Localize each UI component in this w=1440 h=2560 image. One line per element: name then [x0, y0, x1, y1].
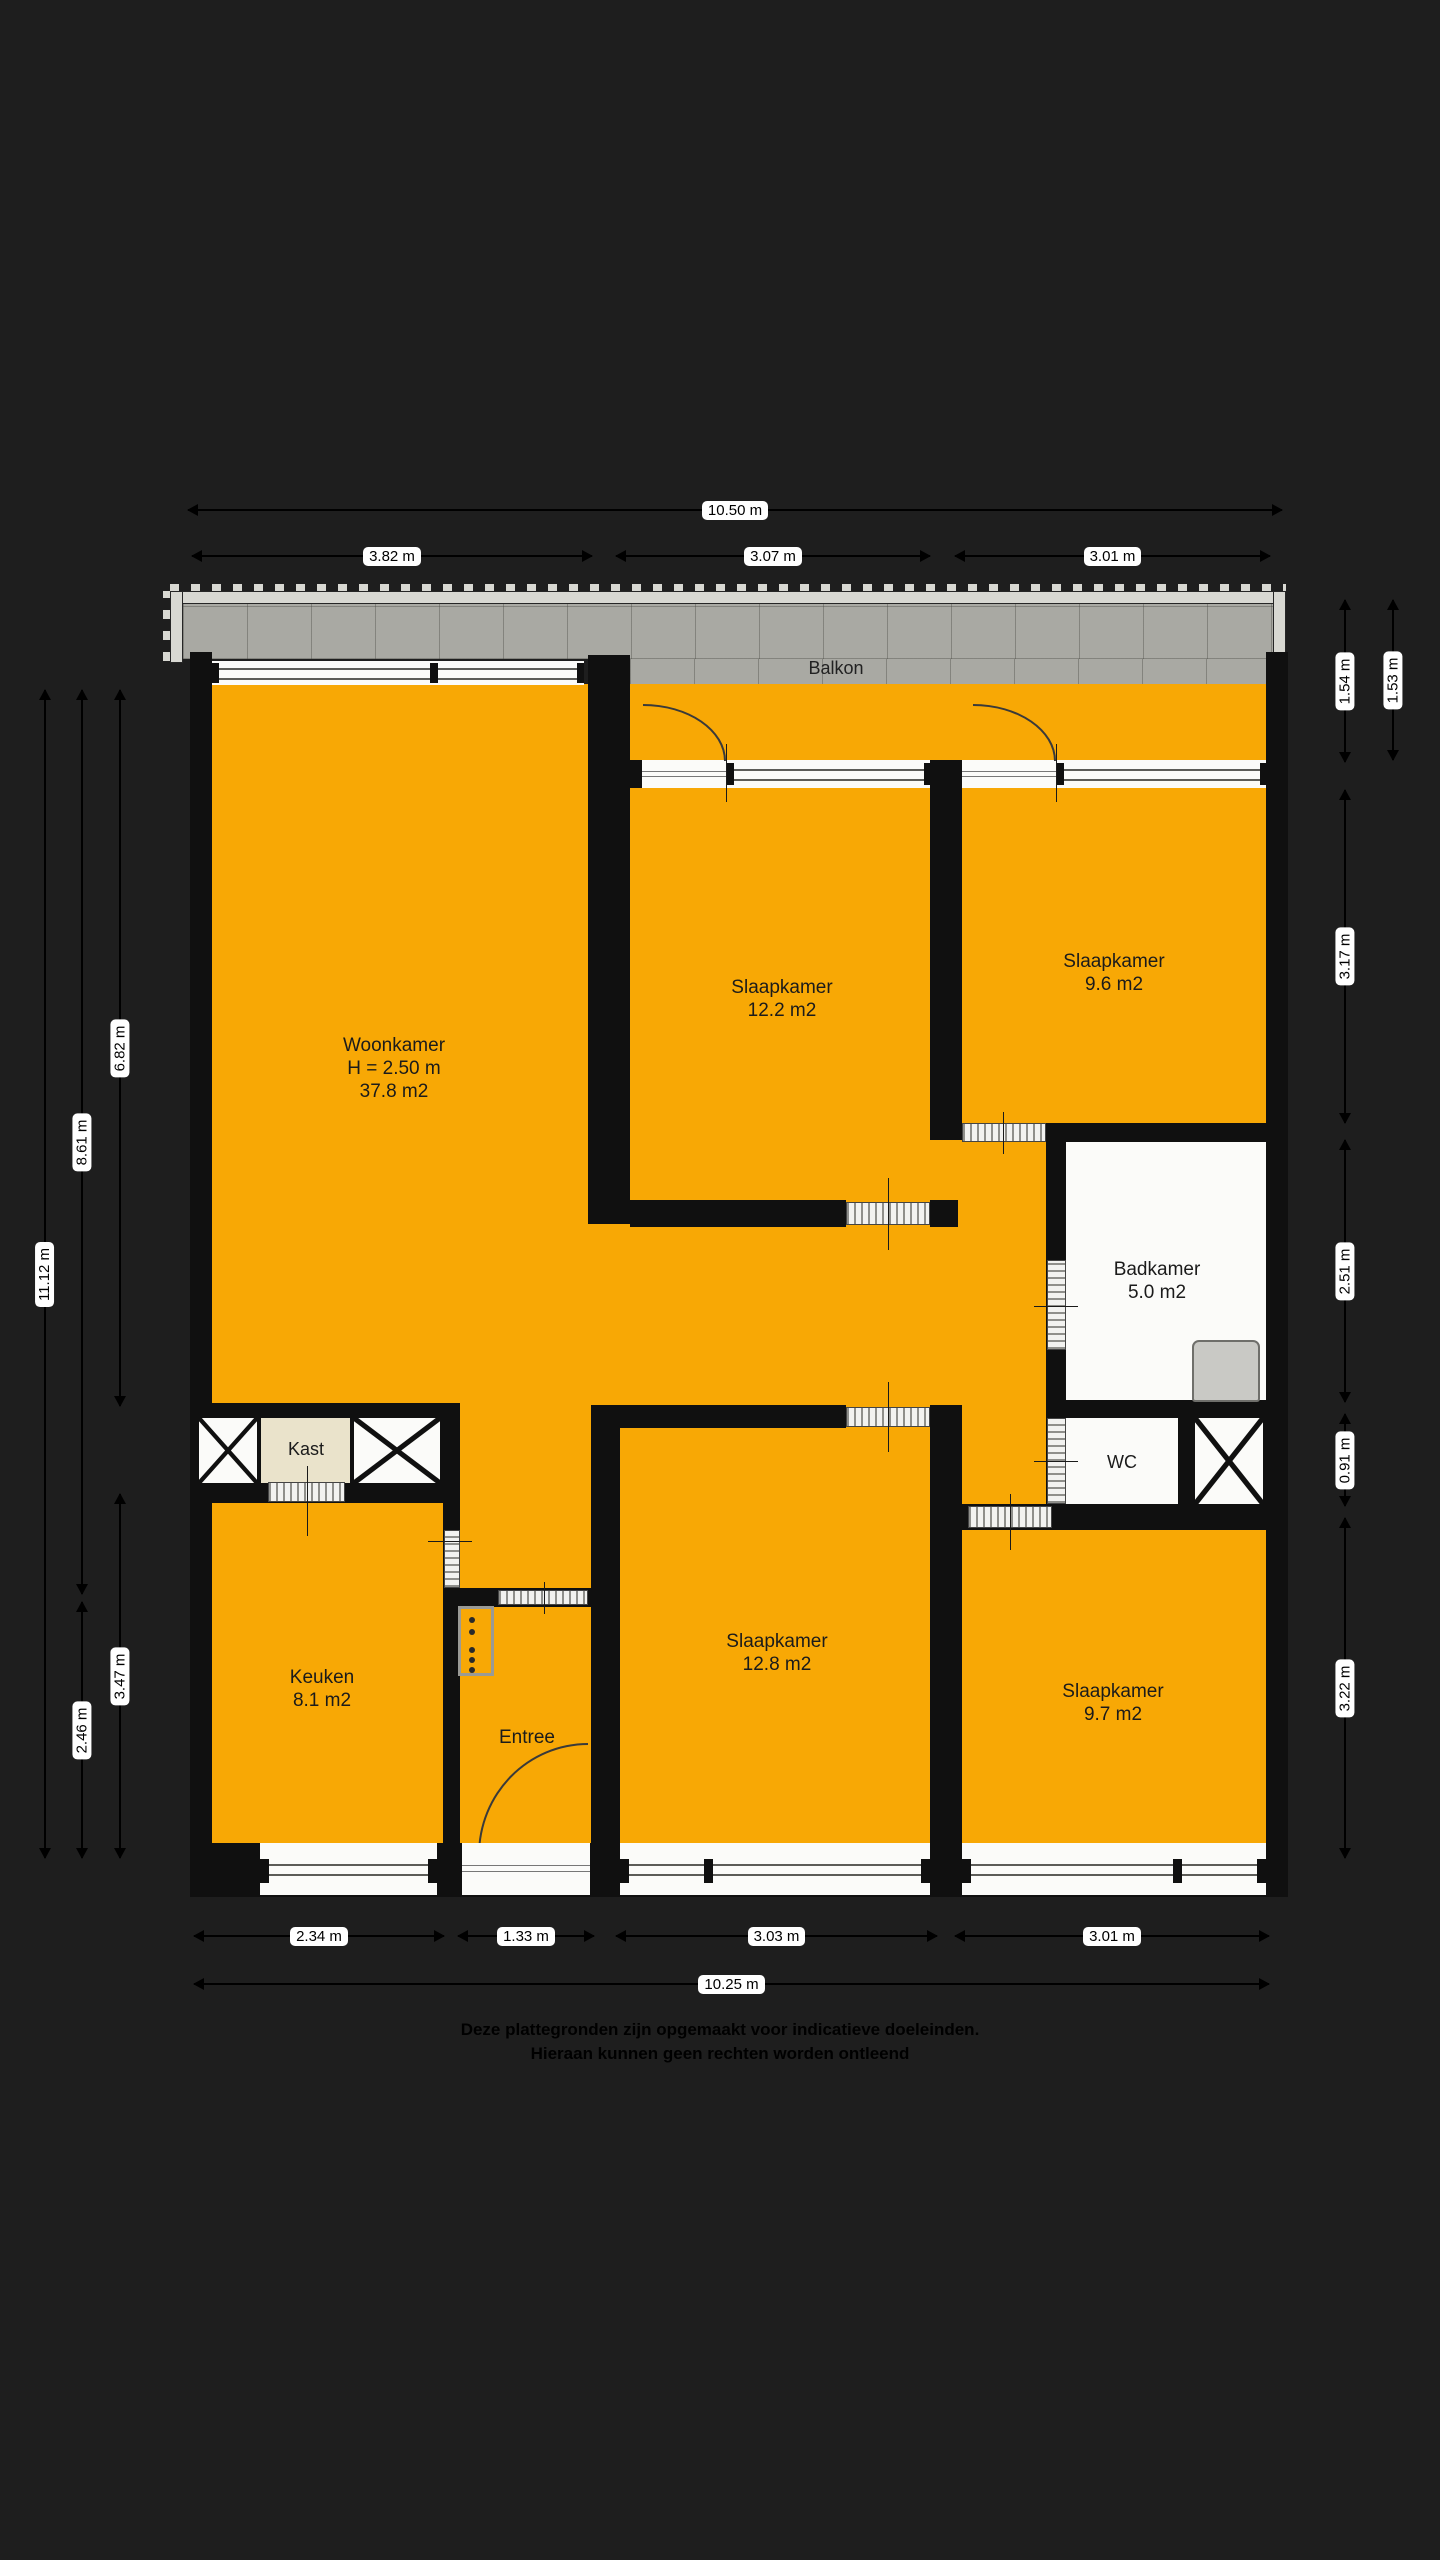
- entree-door-tick: [544, 1582, 545, 1614]
- dim-bottom-seg1: 2.34 m: [194, 1935, 444, 1937]
- bedroom3-top-wall: [620, 1405, 846, 1428]
- stove-icon: [458, 1606, 494, 1676]
- badkamer-top-wall: [1046, 1123, 1266, 1142]
- dim-top-seg2: 3.07 m: [616, 555, 930, 557]
- disclaimer-line1: Deze plattegronden zijn opgemaakt voor i…: [0, 2020, 1440, 2040]
- woonkamer-right-wall: [588, 655, 630, 1224]
- window-glazing: [623, 1864, 927, 1876]
- bedroom2-window-tick: [1056, 744, 1057, 802]
- dim-right-balcony-inner: 1.54 m: [1344, 600, 1346, 762]
- dim-left-upper-mid: 8.61 m: [81, 690, 83, 1594]
- bedroom4-door-tick: [1010, 1494, 1011, 1550]
- keuken-door[interactable]: [444, 1530, 460, 1588]
- dim-right-badkamer: 2.51 m: [1344, 1140, 1346, 1402]
- bedroom2-window: [1056, 760, 1266, 788]
- dim-right-bedroom4: 3.22 m: [1344, 1518, 1346, 1858]
- bedroom3-window: [620, 1843, 930, 1897]
- hall-bedroom3-divider: [591, 1405, 620, 1862]
- disclaimer-line2: Hieraan kunnen geen rechten worden ontle…: [0, 2044, 1440, 2064]
- room-label-woonkamer: Woonkamer H = 2.50 m 37.8 m2: [343, 1034, 445, 1103]
- bottom-pier-3: [590, 1843, 620, 1897]
- room-label-badkamer: Badkamer 5.0 m2: [1114, 1258, 1201, 1304]
- outer-wall-left: [190, 652, 212, 1862]
- dim-bottom-seg3: 3.03 m: [616, 1935, 937, 1937]
- keuken-window: [260, 1843, 437, 1897]
- dim-bottom-seg4: 3.01 m: [955, 1935, 1269, 1937]
- window-glazing: [729, 769, 927, 781]
- front-door-opening[interactable]: [462, 1843, 590, 1897]
- bottom-pier-1: [190, 1843, 260, 1897]
- bedroom1-window-tick: [726, 744, 727, 802]
- wc-door-tick: [1034, 1461, 1078, 1462]
- shaft-left-a: [196, 1415, 260, 1486]
- bedroom1-window-cap: [630, 760, 642, 788]
- bedroom2-balcony-door[interactable]: [962, 760, 1056, 788]
- dim-top-seg1: 3.82 m: [192, 555, 592, 557]
- room-label-kast: Kast: [288, 1438, 324, 1461]
- room-label-entree: Entree: [499, 1726, 555, 1749]
- dim-right-bedroom2: 3.17 m: [1344, 790, 1346, 1123]
- balcony-railing: [170, 591, 1286, 604]
- room-label-slaapkamer3: Slaapkamer 12.8 m2: [726, 1630, 827, 1676]
- window-glazing: [263, 1864, 434, 1876]
- dim-right-balcony-outer: 1.53 m: [1392, 600, 1394, 760]
- room-label-slaapkamer1: Slaapkamer 12.2 m2: [731, 976, 832, 1022]
- dim-top-overall: 10.50 m: [188, 509, 1282, 511]
- bathtub: [1192, 1340, 1260, 1402]
- floorplan-page: Balkon: [0, 0, 1440, 2560]
- badkamer-door-tick: [1034, 1306, 1078, 1307]
- dim-left-entree: 2.46 m: [81, 1602, 83, 1858]
- wc-shaft-divider: [1178, 1418, 1192, 1504]
- bedroom4-window: [962, 1843, 1266, 1897]
- bedroom3-bedroom4-divider: [930, 1405, 962, 1862]
- closet-door-tick: [307, 1466, 308, 1536]
- shaft-left-b: [351, 1415, 443, 1486]
- dim-bottom-overall: 10.25 m: [194, 1983, 1269, 1985]
- dim-left-woonkamer: 6.82 m: [119, 690, 121, 1406]
- dim-bottom-seg2: 1.33 m: [458, 1935, 594, 1937]
- bedroom1-bottom-wall: [630, 1200, 846, 1227]
- room-label-slaapkamer4: Slaapkamer 9.7 m2: [1062, 1680, 1163, 1726]
- balcony-label: Balkon: [808, 658, 863, 679]
- badkamer-door[interactable]: [1047, 1260, 1066, 1350]
- window-glazing: [215, 668, 581, 680]
- bedroom1-bottom-wall-pillar: [930, 1200, 958, 1227]
- balcony-floor-upper: [183, 604, 1273, 659]
- dim-right-wc: 0.91 m: [1344, 1414, 1346, 1506]
- woonkamer-window: [212, 661, 584, 685]
- room-label-wc: WC: [1107, 1451, 1137, 1474]
- bedroom1-window: [726, 760, 930, 788]
- bedroom2-door-tick: [1003, 1112, 1004, 1154]
- bedroom2-door[interactable]: [962, 1123, 1046, 1142]
- bottom-pier-4: [930, 1843, 962, 1897]
- entree-sliding-door[interactable]: [498, 1590, 588, 1605]
- room-label-slaapkamer2: Slaapkamer 9.6 m2: [1063, 950, 1164, 996]
- bottom-pier-5: [1266, 1843, 1288, 1897]
- dim-top-seg3: 3.01 m: [955, 555, 1270, 557]
- window-glazing: [1059, 769, 1263, 781]
- shaft-right: [1192, 1415, 1266, 1507]
- bedrooms-divider-wall: [930, 760, 962, 1140]
- balcony-railing-left: [170, 591, 183, 663]
- bedroom3-door-tick: [888, 1382, 889, 1452]
- room-label-keuken: Keuken 8.1 m2: [290, 1666, 354, 1712]
- window-glazing: [965, 1864, 1263, 1876]
- outer-wall-right: [1266, 652, 1288, 1862]
- keuken-door-tick: [428, 1541, 472, 1542]
- bottom-pier-2: [437, 1843, 462, 1897]
- bedroom1-balcony-door[interactable]: [642, 760, 726, 788]
- dim-left-keuken: 3.47 m: [119, 1494, 121, 1858]
- bedroom1-door-tick: [888, 1178, 889, 1250]
- dim-left-total: 11.12 m: [44, 690, 46, 1858]
